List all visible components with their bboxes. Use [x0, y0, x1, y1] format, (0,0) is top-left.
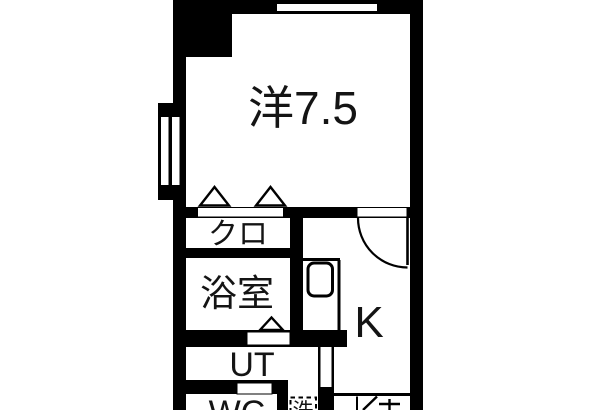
left-window-pane-1: [161, 117, 169, 185]
room-label-bathroom: 浴室: [200, 273, 274, 314]
ut-k-wall-right-line: [332, 347, 335, 387]
top-window-inner-line: [277, 11, 377, 14]
room-label-western: 洋7.5: [248, 82, 358, 134]
floor-plan-svg: 洋7.5 クロ 浴室 K UT WC 洗: [0, 0, 600, 410]
counter-right-edge: [338, 260, 341, 330]
outer-wall-top-left: [173, 0, 277, 14]
wc-door-panel: [237, 383, 272, 394]
room-label-toilet: WC: [209, 394, 266, 410]
room-label-closet: クロ: [208, 218, 268, 251]
outer-wall-right: [410, 0, 423, 410]
top-window-outer-line: [277, 0, 377, 4]
ut-k-wall-lower: [318, 387, 334, 410]
ut-door-opening: [321, 347, 332, 387]
k-entrance-divider: [334, 393, 410, 396]
outer-wall-left-lower: [173, 200, 186, 410]
ut-k-wall-left-line: [318, 347, 321, 387]
floor-plan-page: 洋7.5 クロ 浴室 K UT WC 洗: [0, 0, 600, 410]
room-label-laundry: 洗: [293, 400, 314, 410]
room-label-kitchen: K: [354, 298, 383, 347]
main-door-opening: [357, 208, 407, 218]
outer-wall-left-upper: [173, 0, 186, 110]
bath-door-panel: [247, 332, 290, 345]
wc-right-wall: [277, 380, 288, 410]
room-label-utility: UT: [229, 346, 274, 384]
left-window-pane-2: [172, 117, 180, 185]
closet-door-panels: [198, 208, 283, 217]
kitchen-sink: [308, 263, 333, 296]
corridor-wall: [290, 218, 303, 335]
floor-background: [0, 0, 600, 410]
counter-top-edge: [303, 258, 340, 261]
